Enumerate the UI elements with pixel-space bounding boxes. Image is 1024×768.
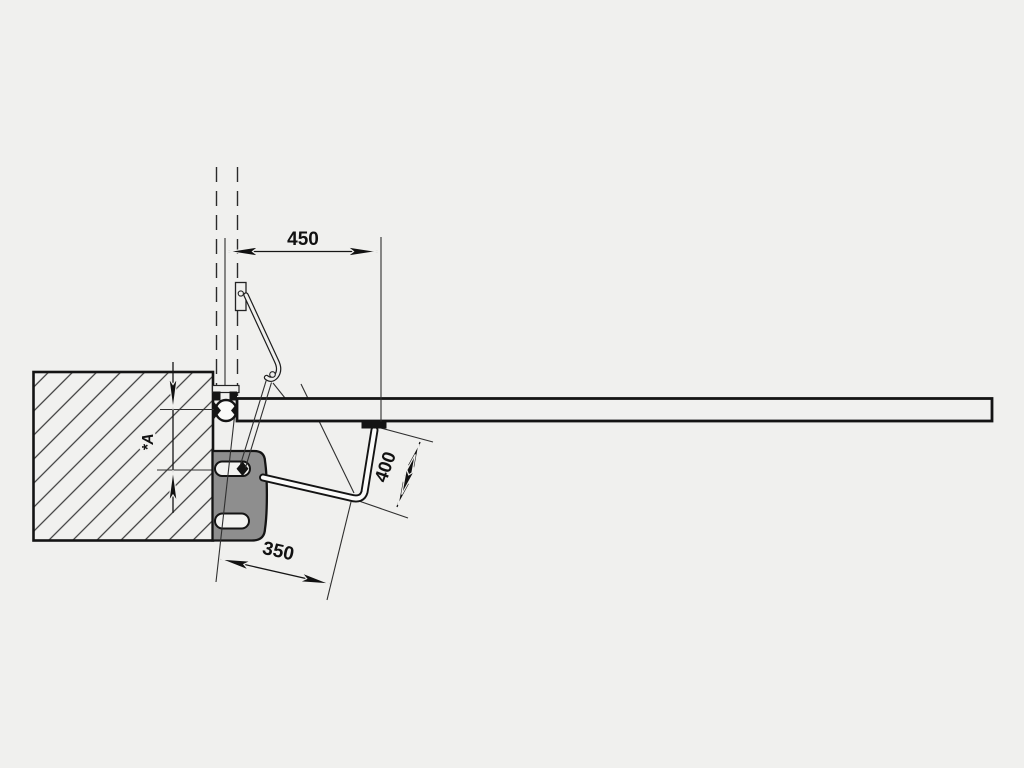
gate-bracket-pivot-open xyxy=(238,291,243,296)
gate-operator-installation-diagram: *A xyxy=(0,0,1024,768)
hinge-plate-end-left xyxy=(213,392,221,401)
gate-leaf xyxy=(237,399,992,422)
elbow-pivot-open xyxy=(270,372,276,378)
pillar-hatching xyxy=(34,372,214,541)
hinge-plate-end-right xyxy=(230,392,238,401)
bracket-slot-bottom xyxy=(215,514,249,529)
gate-attachment-bracket xyxy=(362,422,387,429)
hinge-top-plate xyxy=(213,386,240,393)
pillar-section xyxy=(34,372,214,541)
technical-drawing-page: *A xyxy=(0,0,1024,768)
dimension-450-label: 450 xyxy=(287,229,319,250)
motor-bracket xyxy=(213,451,267,541)
dimension-a-label: *A xyxy=(140,433,157,450)
